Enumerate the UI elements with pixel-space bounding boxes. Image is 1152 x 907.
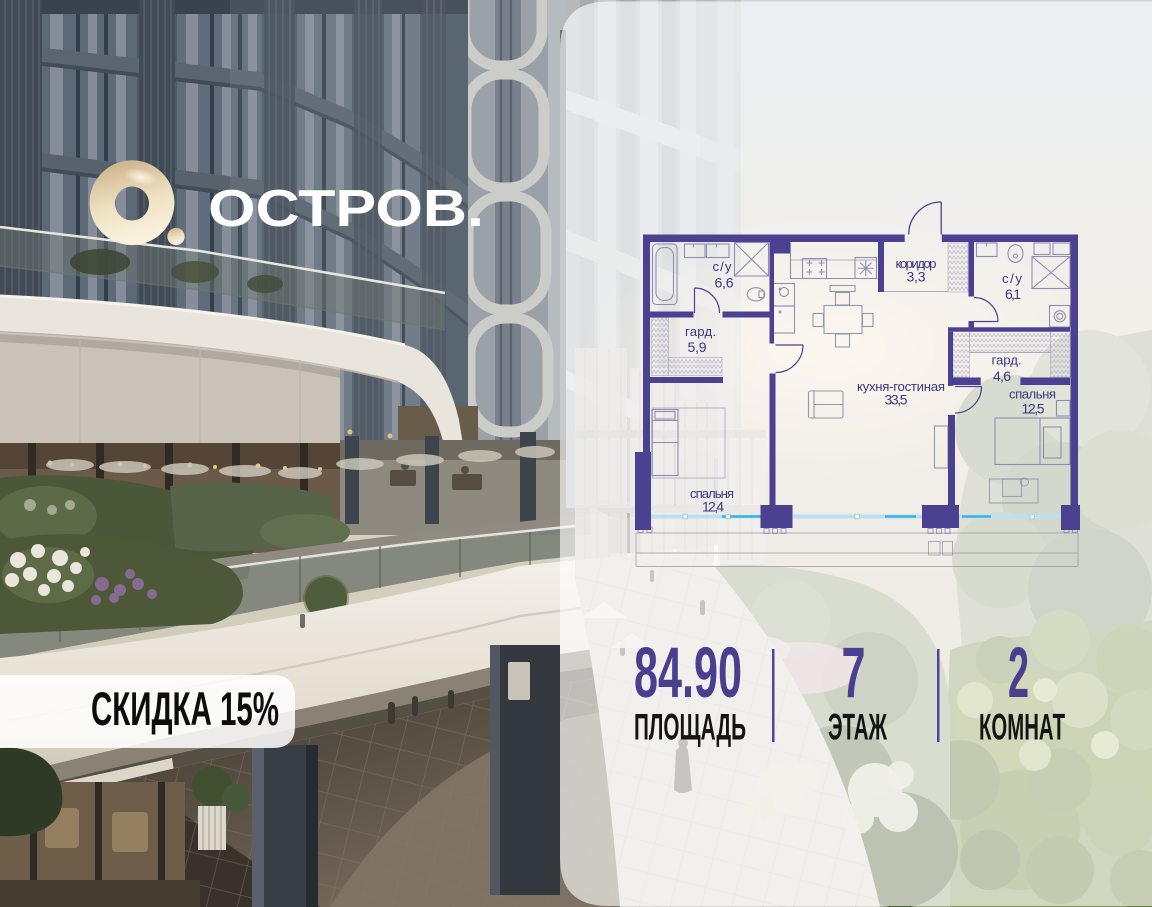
svg-text:с/у: с/у — [713, 259, 732, 274]
svg-text:2: 2 — [1008, 634, 1029, 713]
svg-text:ЭТАЖ: ЭТАЖ — [828, 707, 887, 748]
svg-text:6,1: 6,1 — [1005, 286, 1021, 302]
svg-text:СКИДКА 15%: СКИДКА 15% — [91, 682, 279, 735]
svg-text:КОМНАТ: КОМНАТ — [979, 707, 1065, 748]
svg-text:33,5: 33,5 — [885, 392, 908, 408]
svg-text:с/у: с/у — [1002, 271, 1022, 286]
svg-text:12,5: 12,5 — [1022, 401, 1045, 417]
svg-text:гард.: гард. — [685, 324, 716, 339]
svg-text:5,9: 5,9 — [688, 339, 707, 355]
svg-text:ОСТРОВ.: ОСТРОВ. — [208, 180, 484, 238]
svg-text:7: 7 — [842, 634, 866, 713]
svg-text:гард.: гард. — [992, 353, 1022, 368]
svg-text:4,6: 4,6 — [993, 368, 1011, 384]
svg-text:12,4: 12,4 — [702, 499, 724, 515]
svg-text:ПЛОЩАДЬ: ПЛОЩАДЬ — [634, 707, 746, 748]
svg-text:84.90: 84.90 — [634, 634, 742, 713]
svg-text:3,3: 3,3 — [907, 269, 926, 285]
svg-text:6,6: 6,6 — [715, 275, 734, 291]
svg-text:спальня: спальня — [1009, 387, 1056, 402]
